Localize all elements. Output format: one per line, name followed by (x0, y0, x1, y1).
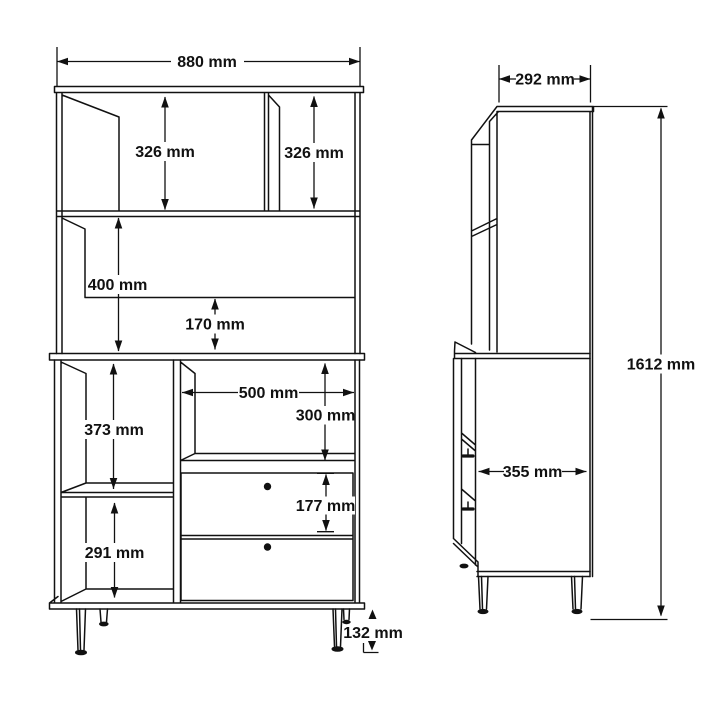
arrowhead-down (211, 339, 219, 350)
dimension-lower-left-lower: 291 mm (85, 503, 145, 599)
front-drawer-knobs (264, 483, 271, 551)
side-back-foot (572, 609, 583, 614)
side-knob-profiles (463, 456, 473, 509)
front-view (50, 87, 365, 656)
arrowhead-up (211, 299, 219, 310)
drawer-knob-top (264, 483, 271, 490)
dim-label-lower-depth: 355 mm (503, 464, 563, 481)
dim-label-open-compartment-height: 300 mm (296, 408, 356, 425)
front-counter-top (50, 354, 365, 361)
side-leg-lines (479, 577, 583, 610)
arrowhead-down (322, 520, 330, 531)
side-hutch-profile (472, 107, 594, 577)
front-legs (75, 609, 351, 655)
arrowhead-left (479, 468, 490, 476)
dim-label-top-left-height: 326 mm (135, 144, 195, 161)
dimension-open-compartment: 300 mm (296, 363, 356, 461)
dim-label-drawer-front-height: 177 mm (296, 498, 356, 515)
arrowhead-right (343, 389, 354, 397)
arrowhead-down (657, 606, 665, 617)
dim-label-top-right-height: 326 mm (284, 145, 344, 162)
arrowhead-left (499, 75, 510, 83)
side-front-foot (478, 609, 489, 614)
arrowhead-down (161, 199, 169, 210)
arrowhead-down (310, 198, 318, 209)
dimension-lower-depth: 355 mm (479, 462, 587, 481)
dimension-drawer-compartment-width: 500 mm (182, 383, 354, 402)
dimension-top-left-compartment: 326 mm (135, 97, 195, 211)
dimension-drawer-front: 177 mm (296, 473, 356, 531)
arrowhead-right (349, 58, 360, 66)
front-leg-lines (77, 609, 350, 650)
dim-label-lower-left-upper-height: 373 mm (84, 422, 144, 439)
cabinet-dimension-diagram: 880 mm 326 mm 326 mm 400 mm 170 mm 500 m… (0, 0, 720, 720)
side-counter-top (455, 342, 591, 359)
dimension-leg-height: 132 mm (343, 610, 403, 653)
dim-label-overall-height: 1612 mm (627, 357, 696, 374)
dimension-middle-section: 400 mm (88, 218, 149, 352)
arrowhead-right (580, 75, 591, 83)
side-view (454, 107, 594, 615)
dim-label-overall-width: 880 mm (177, 54, 237, 71)
arrowhead-right (576, 468, 587, 476)
dimension-lower-left-upper: 373 mm (84, 364, 144, 490)
front-right-foot (332, 646, 344, 652)
back-left-foot (99, 622, 109, 627)
front-left-foot (75, 650, 87, 656)
arrowhead-up (111, 503, 119, 514)
dim-label-upper-depth: 292 mm (515, 72, 575, 89)
arrowhead-up (110, 364, 118, 375)
dimension-top-right-compartment: 326 mm (284, 96, 344, 209)
arrowhead-up (115, 218, 123, 229)
technical-drawing-canvas: 880 mm 326 mm 326 mm 400 mm 170 mm 500 m… (0, 0, 720, 720)
dim-label-lower-left-lower-height: 291 mm (85, 545, 145, 562)
arrowhead-up (369, 610, 377, 620)
dim-label-leg-height: 132 mm (343, 625, 403, 642)
arrowhead-down (111, 587, 119, 598)
arrowhead-left (182, 389, 193, 397)
front-lower-cabinet (50, 360, 365, 609)
side-far-front-foot (460, 564, 469, 569)
arrowhead-down (321, 450, 329, 461)
arrowhead-up (310, 96, 318, 107)
arrowhead-up (322, 474, 330, 485)
arrowhead-up (161, 97, 169, 108)
arrowhead-down (368, 641, 376, 651)
dim-label-gap-height: 170 mm (185, 317, 245, 334)
arrowhead-up (321, 363, 329, 374)
arrowhead-down (115, 341, 123, 352)
arrowhead-up (657, 108, 665, 119)
arrowhead-left (57, 58, 68, 66)
dimension-upper-depth: 292 mm (499, 65, 591, 103)
dimension-back-panel-gap: 170 mm (185, 299, 245, 350)
dimension-overall-width: 880 mm (57, 47, 360, 86)
dim-label-middle-height: 400 mm (88, 277, 148, 294)
front-hutch-outline (55, 87, 364, 354)
drawer-knob-bottom (264, 543, 271, 550)
dim-label-compartment-width: 500 mm (239, 385, 299, 402)
back-right-foot (342, 620, 350, 624)
dimension-overall-height: 1612 mm (591, 107, 699, 620)
